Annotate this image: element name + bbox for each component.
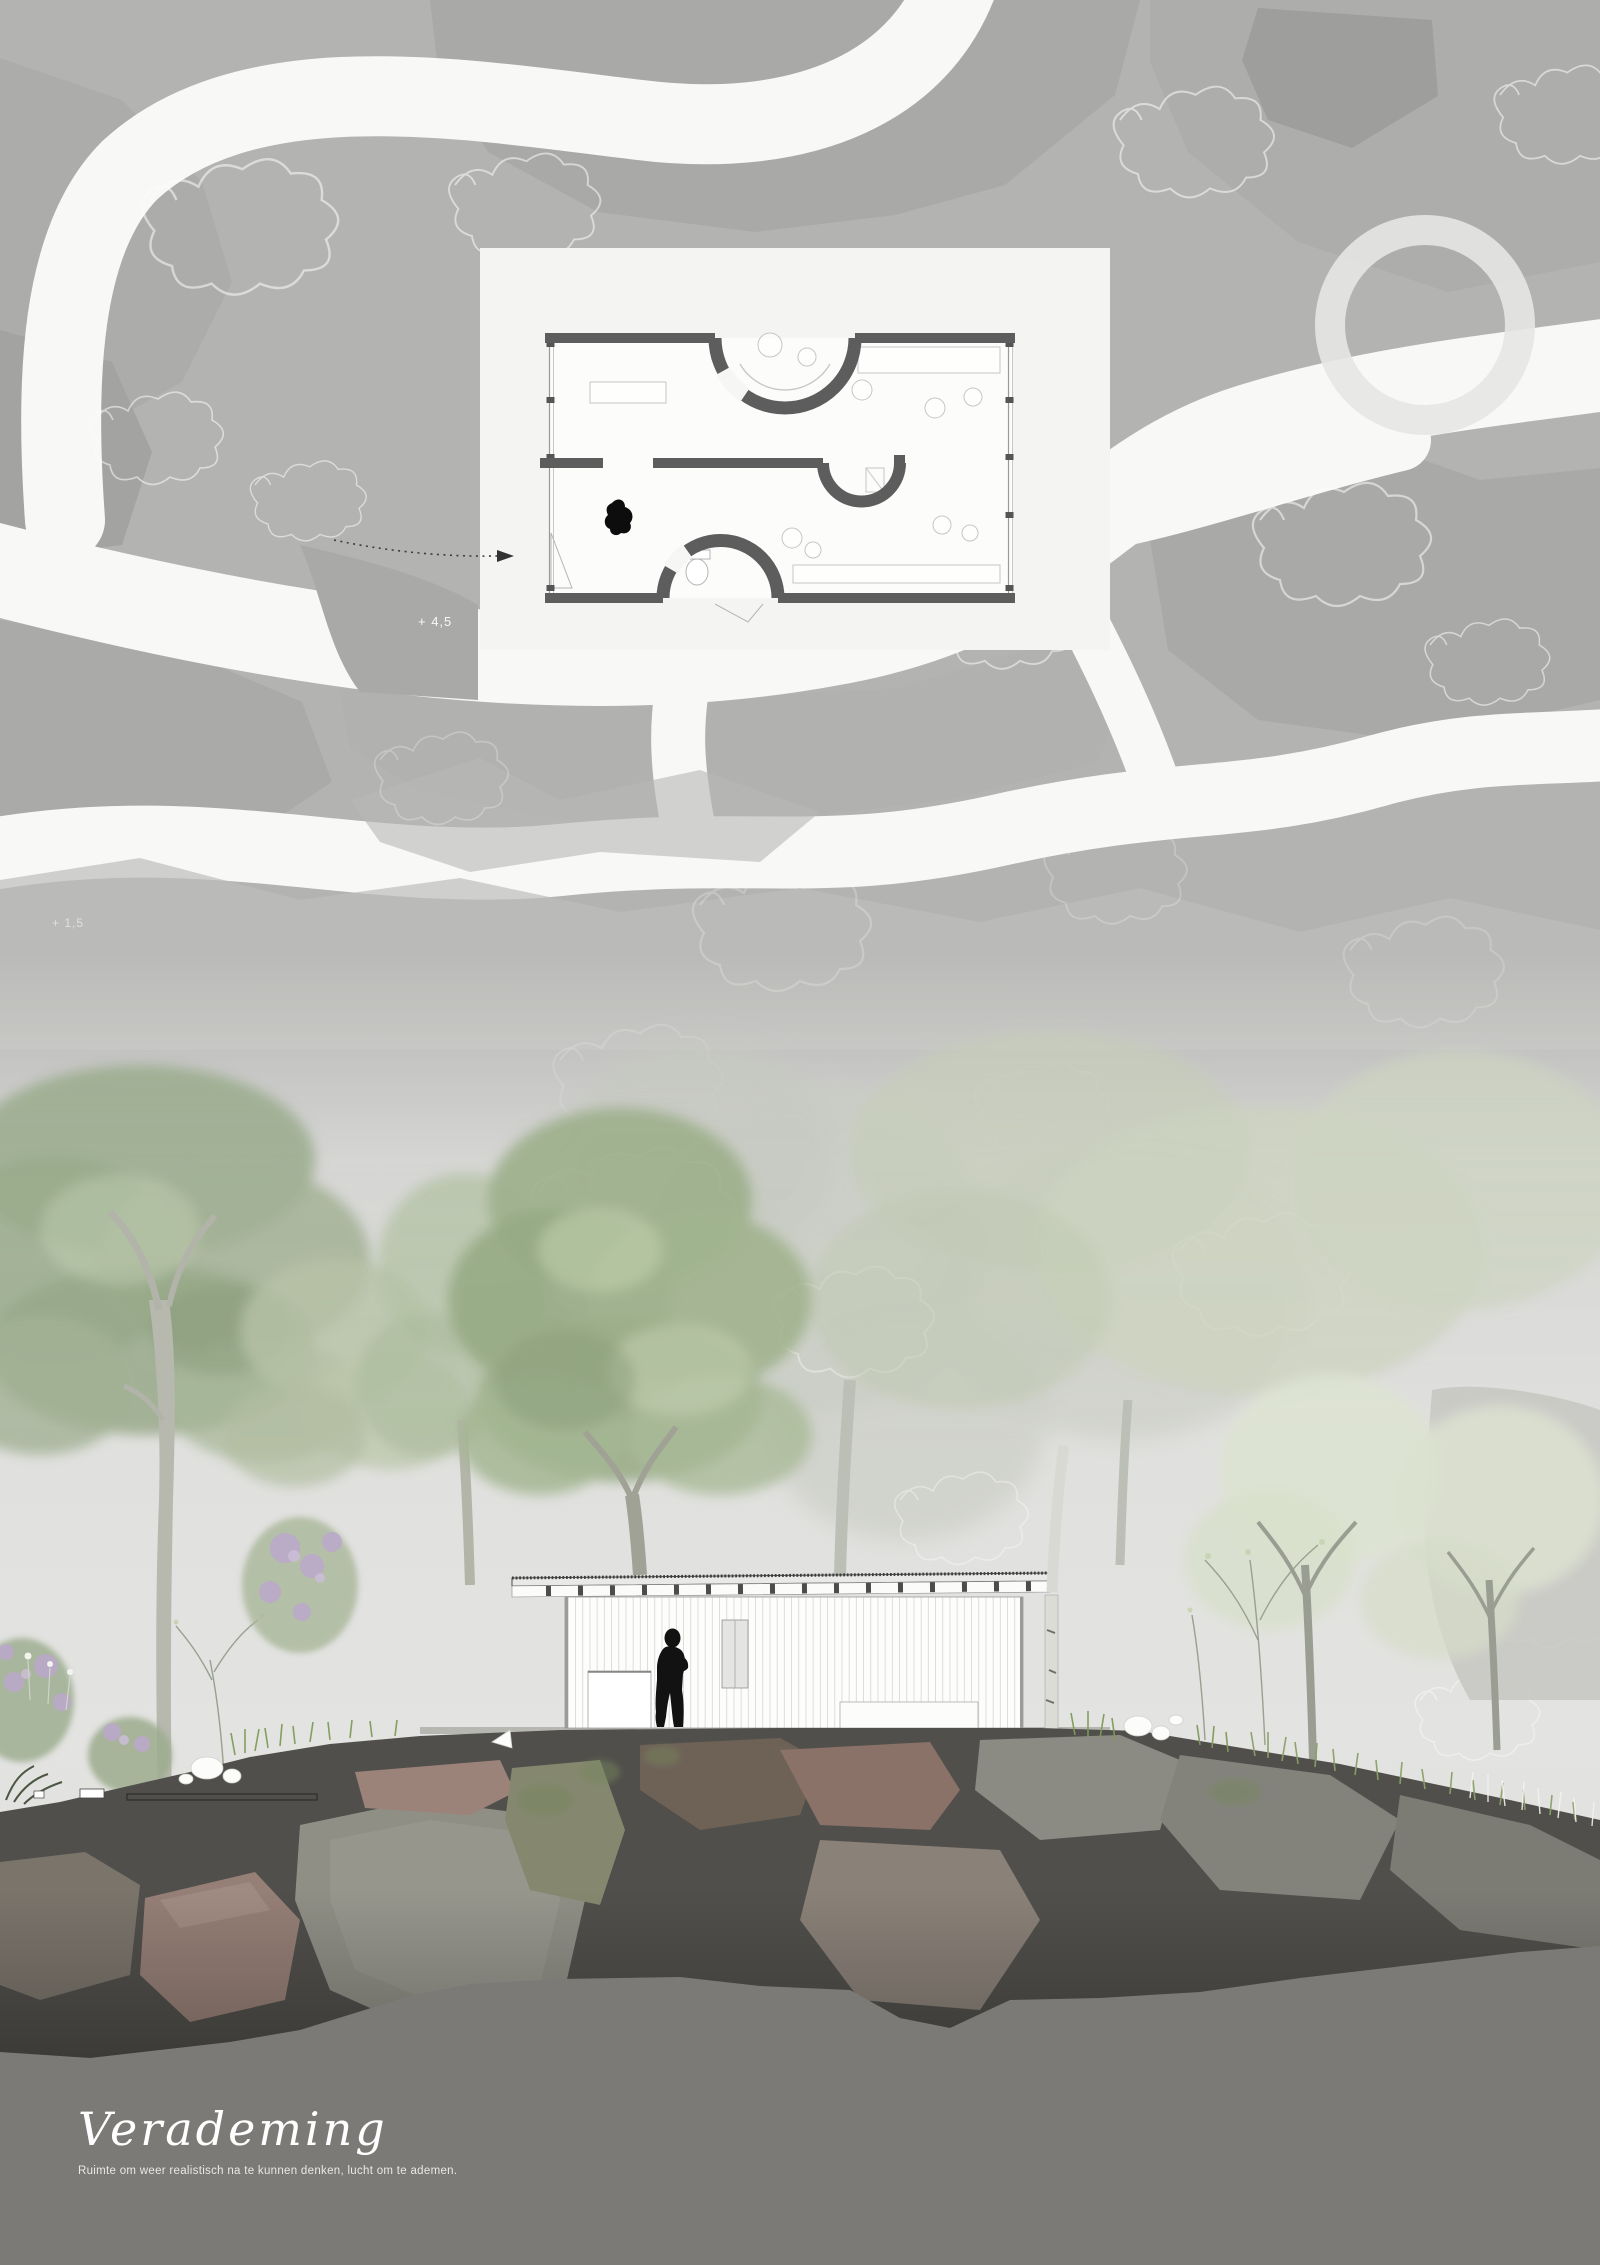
roof <box>512 1573 1050 1597</box>
title-block: Verademing Ruimte om weer realistisch na… <box>78 2104 457 2177</box>
corner-post-left <box>565 1597 568 1728</box>
presentation-poster: + 4,5 + 1,5 Verademing Ruimte om weer re… <box>0 0 1600 2265</box>
door-panel <box>722 1620 748 1688</box>
spot-elevation-upper: + 4,5 <box>418 614 452 629</box>
entry-route-arrow <box>320 528 535 573</box>
counter-block <box>588 1671 651 1728</box>
floor-plan-drawing <box>480 248 1110 650</box>
birch-trunk <box>1045 1445 1064 1729</box>
right-blossom-trees <box>1185 1375 1600 1760</box>
corner-post-right <box>1020 1597 1023 1728</box>
right-pale-canopy <box>810 1030 1600 1410</box>
poster-subtitle: Ruimte om weer realistisch na te kunnen … <box>78 2165 457 2177</box>
poster-title: Verademing <box>78 2104 457 2155</box>
spot-elevation-lower: + 1,5 <box>52 916 84 930</box>
floor-plan-panel <box>480 248 1110 650</box>
bench <box>840 1702 978 1728</box>
section-rendering <box>0 900 1600 2265</box>
arrowhead-icon <box>497 550 514 562</box>
